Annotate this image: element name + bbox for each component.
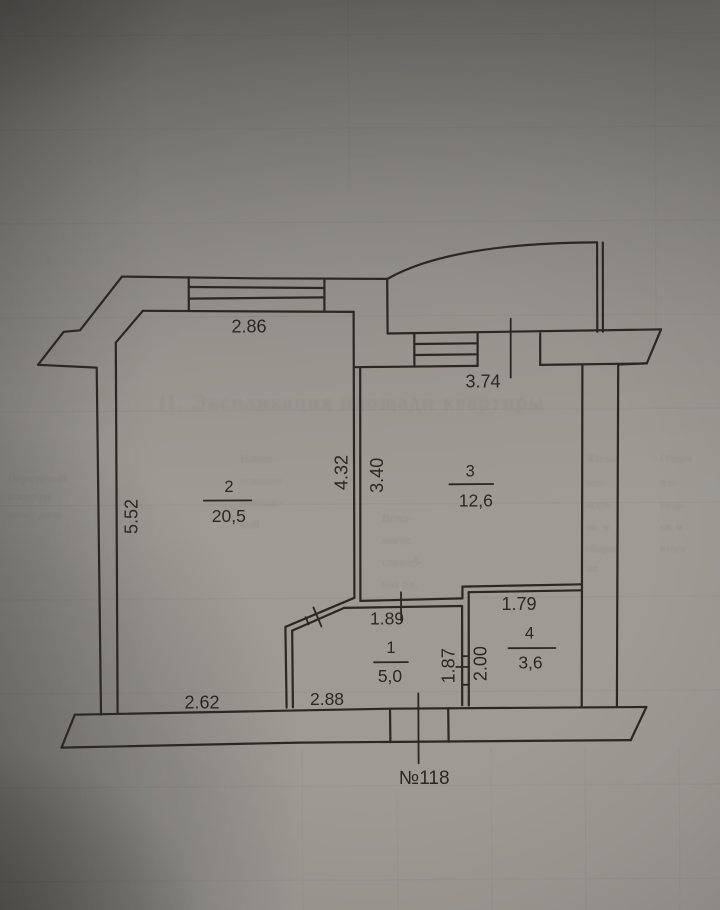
svg-text:1.89: 1.89 (370, 609, 404, 629)
svg-text:3.74: 3.74 (465, 372, 500, 392)
svg-text:2.00: 2.00 (471, 646, 491, 681)
svg-text:пл.: пл. (586, 563, 600, 575)
svg-text:3: 3 (466, 462, 475, 480)
svg-text:3.40: 3.40 (367, 458, 387, 493)
svg-text:номер по: номер по (8, 491, 51, 503)
svg-text:могат.: могат. (382, 533, 413, 547)
svg-text:12,6: 12,6 (459, 490, 493, 510)
svg-text:помеще-: помеще- (240, 495, 284, 509)
svg-text:5.52: 5.52 (121, 499, 141, 534)
svg-text:щадь: щадь (660, 499, 684, 511)
svg-text:нование: нование (240, 473, 281, 487)
svg-text:1.87: 1.87 (439, 648, 459, 683)
svg-text:№118: №118 (399, 768, 450, 789)
svg-text:щадь: щадь (586, 499, 610, 511)
svg-text:2.88: 2.88 (310, 689, 344, 709)
svg-text:3,6: 3,6 (518, 653, 542, 673)
svg-text:общая: общая (586, 543, 616, 555)
svg-text:5,0: 5,0 (378, 666, 403, 686)
svg-text:Общая: Общая (660, 453, 692, 465)
svg-text:2: 2 (224, 478, 233, 496)
svg-text:1.79: 1.79 (501, 594, 536, 614)
svg-text:4.32: 4.32 (332, 455, 352, 490)
svg-text:2.62: 2.62 (184, 693, 219, 713)
svg-text:2.86: 2.86 (231, 316, 266, 336)
svg-text:плану дома: плану дома (8, 509, 61, 521)
svg-text:Жилая: Жилая (586, 453, 617, 465)
svg-text:кв. м: кв. м (586, 521, 609, 533)
svg-text:итого: итого (660, 543, 686, 555)
svg-text:Вспо-: Вспо- (382, 511, 412, 525)
svg-text:ная пл.: ная пл. (382, 577, 418, 591)
svg-text:служеб-: служеб- (382, 555, 423, 569)
svg-text:II. Экспликация площади кварти: II. Экспликация площади квартиры (159, 390, 546, 414)
svg-text:пло-: пло- (660, 477, 681, 489)
svg-text:Наиме-: Наиме- (240, 451, 277, 465)
svg-text:4: 4 (525, 625, 534, 643)
svg-text:пло-: пло- (586, 477, 607, 489)
svg-text:Порядковый: Порядковый (8, 473, 66, 485)
svg-text:1: 1 (386, 639, 395, 657)
svg-text:кв. м: кв. м (660, 521, 683, 533)
svg-text:20,5: 20,5 (212, 506, 246, 526)
